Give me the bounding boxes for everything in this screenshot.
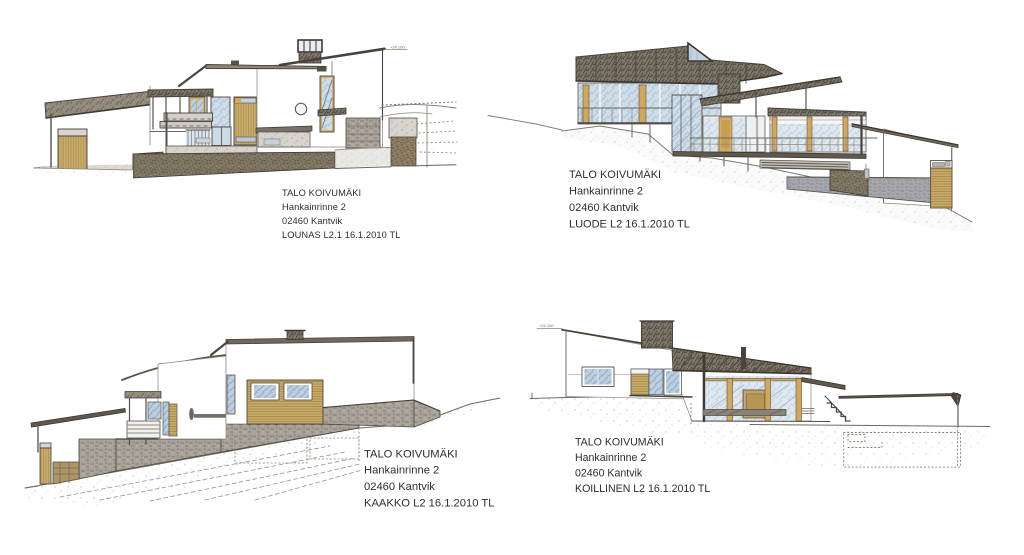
svg-text:Hankainrinne 2: Hankainrinne 2 bbox=[282, 202, 346, 212]
svg-text:TALO KOIVUMÄKI: TALO KOIVUMÄKI bbox=[282, 188, 361, 198]
svg-text:TALO KOIVUMÄKI: TALO KOIVUMÄKI bbox=[569, 169, 661, 181]
svg-text:LUODE L2 16.1.2010 TL: LUODE L2 16.1.2010 TL bbox=[569, 219, 690, 231]
svg-text:LOUNAS L2.1 16.1.2010 TL: LOUNAS L2.1 16.1.2010 TL bbox=[282, 230, 401, 240]
svg-text:+24.100: +24.100 bbox=[390, 45, 405, 50]
svg-text:Hankainrinne 2: Hankainrinne 2 bbox=[575, 452, 646, 464]
svg-text:02460 Kantvik: 02460 Kantvik bbox=[364, 481, 435, 493]
svg-text:Hankainrinne 2: Hankainrinne 2 bbox=[569, 186, 643, 198]
svg-text:KAAKKO L2 16.1.2010 TL: KAAKKO L2 16.1.2010 TL bbox=[364, 498, 494, 510]
svg-text:KOILLINEN L2 16.1.2010 TL: KOILLINEN L2 16.1.2010 TL bbox=[575, 483, 710, 495]
svg-text:02460 Kantvik: 02460 Kantvik bbox=[569, 202, 639, 214]
svg-text:02460 Kantvik: 02460 Kantvik bbox=[282, 216, 342, 226]
svg-text:TALO KOIVUMÄKI: TALO KOIVUMÄKI bbox=[575, 436, 664, 448]
svg-text:02460 Kantvik: 02460 Kantvik bbox=[575, 468, 643, 480]
svg-text:+24.100: +24.100 bbox=[539, 323, 554, 328]
svg-text:TALO KOIVUMÄKI: TALO KOIVUMÄKI bbox=[364, 449, 458, 461]
svg-text:Hankainrinne 2: Hankainrinne 2 bbox=[364, 465, 439, 477]
